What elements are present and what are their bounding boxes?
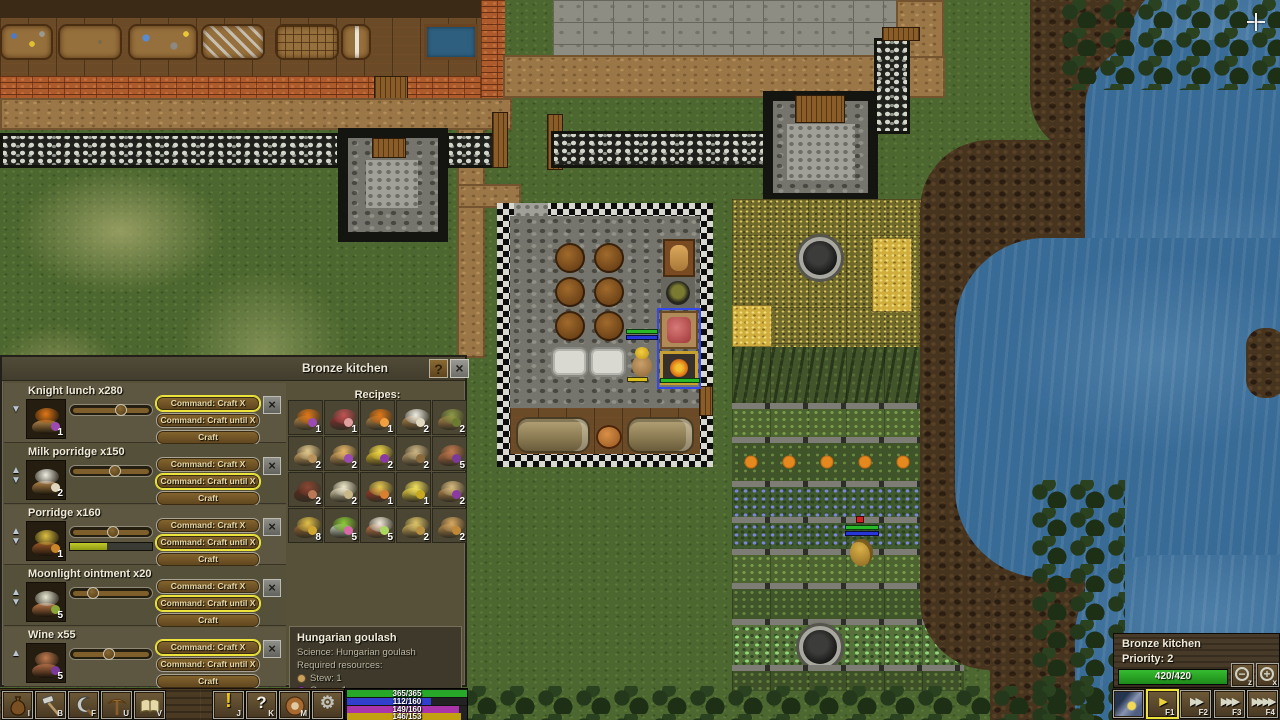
- recipe-count: 5: [459, 460, 465, 471]
- priority-increase-button[interactable]: + x: [1256, 663, 1279, 687]
- status-bar-value: 112/160: [347, 698, 467, 705]
- daynight-icon: [1115, 692, 1142, 716]
- craft-progress-bar: [69, 542, 153, 551]
- recipe-cell[interactable]: 1: [324, 400, 359, 435]
- recipe-cell[interactable]: 2: [396, 400, 431, 435]
- slider-knob[interactable]: [109, 465, 121, 477]
- recipe-cell[interactable]: 2: [288, 472, 323, 507]
- daynight-indicator[interactable]: [1113, 690, 1144, 718]
- game-speed-controls: ▶F1▶▶F2▶▶▶F3▶▶▶▶F4: [1113, 688, 1280, 720]
- recipe-count: 2: [387, 460, 393, 471]
- reorder-arrows: ▲: [7, 649, 25, 659]
- reorder-down-button[interactable]: ▼: [7, 476, 25, 486]
- storage-bin-crates[interactable]: [275, 24, 339, 60]
- remove-item-button[interactable]: ×: [263, 518, 281, 536]
- queue-row-buttons: Command: Craft XCommand: Craft until XCr…: [156, 457, 260, 508]
- kitchen-door[interactable]: [699, 386, 713, 416]
- game-viewport: Bronze kitchen ? × Knight lunch x280▼1Co…: [0, 0, 1280, 720]
- resource-text: Stew: 1: [310, 673, 342, 684]
- queue-row-buttons: Command: Craft XCommand: Craft until XCr…: [156, 518, 260, 569]
- slider-knob[interactable]: [115, 404, 127, 416]
- reorder-arrows: ▲▼: [7, 588, 25, 608]
- recipe-count: 1: [387, 496, 393, 507]
- queue-item-name: Porridge x160: [28, 507, 101, 519]
- craft-button[interactable]: Craft: [156, 430, 260, 445]
- remove-item-button[interactable]: ×: [263, 396, 281, 414]
- queue-item-name: Knight lunch x280: [28, 385, 123, 397]
- hotkey-label: K: [268, 709, 274, 718]
- recipe-cell[interactable]: 2: [324, 436, 359, 471]
- recipe-count: 5: [387, 532, 393, 543]
- keg[interactable]: [551, 347, 588, 377]
- recipe-count: 2: [459, 496, 465, 507]
- status-bar-value: 365/365: [347, 690, 467, 697]
- speed-4-icon: ▶▶▶▶: [1248, 695, 1277, 708]
- barrel[interactable]: [555, 243, 585, 273]
- command-button[interactable]: Command: Craft until X: [156, 413, 260, 428]
- workstation-butcher-table[interactable]: [660, 311, 698, 349]
- recipe-count: 1: [315, 424, 321, 435]
- recipe-cell[interactable]: 1: [360, 472, 395, 507]
- stone-wall: [0, 133, 340, 168]
- hotkey-label: M: [300, 709, 307, 718]
- recipe-cell[interactable]: 8: [288, 508, 323, 543]
- toolbar-pickaxe-button[interactable]: U: [101, 691, 132, 719]
- recipe-cell[interactable]: 1: [360, 400, 395, 435]
- gnome-worker[interactable]: [628, 345, 656, 379]
- speed-button-F2[interactable]: ▶▶F2: [1180, 690, 1211, 718]
- barrel[interactable]: [594, 277, 624, 307]
- command-button[interactable]: Command: Craft until X: [156, 596, 260, 611]
- status-bar: 112/160: [347, 698, 467, 705]
- stone-wall: [874, 38, 910, 134]
- remove-item-button[interactable]: ×: [263, 640, 281, 658]
- tooltip-title: Hungarian goulash: [297, 632, 454, 644]
- recipe-cell[interactable]: 5: [324, 508, 359, 543]
- hotkey-label: U: [123, 709, 129, 718]
- remove-item-button[interactable]: ×: [263, 579, 281, 597]
- stone-pavement: [553, 0, 903, 55]
- storage-bin-weapons[interactable]: [201, 24, 265, 60]
- craft-button[interactable]: Craft: [156, 613, 260, 628]
- queue-row: Porridge x160▲▼1Command: Craft XCommand:…: [4, 505, 286, 565]
- item-count: 5: [57, 671, 63, 682]
- recipe-cell[interactable]: 2: [432, 400, 467, 435]
- storage-building-wall-shadow: [0, 0, 505, 18]
- speed-3-icon: ▶▶▶: [1215, 695, 1244, 708]
- storage-bin[interactable]: [128, 24, 198, 60]
- item-count: 2: [57, 488, 63, 499]
- brick-wall: [481, 0, 505, 100]
- speed-button-F1[interactable]: ▶F1: [1147, 690, 1178, 718]
- reorder-arrows: ▲▼: [7, 466, 25, 486]
- queue-row: Moonlight ointment x20▲▼5Command: Craft …: [4, 566, 286, 626]
- recipe-cell[interactable]: 2: [324, 472, 359, 507]
- close-icon[interactable]: ×: [450, 359, 469, 378]
- queue-row: Knight lunch x280▼1Command: Craft XComma…: [4, 383, 286, 443]
- queue-row-buttons: Command: Craft XCommand: Craft until XCr…: [156, 579, 260, 630]
- reorder-up-button[interactable]: ▲: [7, 649, 25, 659]
- status-bar: 146/153: [347, 713, 467, 720]
- recipe-count: 8: [315, 532, 321, 543]
- queue-row-buttons: Command: Craft XCommand: Craft until XCr…: [156, 396, 260, 447]
- command-button[interactable]: Command: Craft X: [156, 396, 260, 411]
- recipe-cell[interactable]: 2: [396, 508, 431, 543]
- recipe-cell[interactable]: 2: [432, 508, 467, 543]
- window-titlebar[interactable]: Bronze kitchen ? ×: [2, 357, 465, 381]
- recipe-count: 2: [315, 496, 321, 507]
- hotkey-label: F3: [1232, 708, 1241, 717]
- recipe-cell[interactable]: 2: [288, 436, 323, 471]
- craft-amount-slider[interactable]: [69, 526, 153, 538]
- command-button[interactable]: Command: Craft X: [156, 579, 260, 594]
- hotkey-label: J: [237, 709, 241, 718]
- toolbar-gear-button[interactable]: ⚙: [312, 691, 343, 719]
- command-button[interactable]: Command: Craft X: [156, 457, 260, 472]
- copper-pot[interactable]: [596, 425, 622, 449]
- item-icon: 2: [26, 460, 66, 500]
- gear-icon: ⚙: [313, 693, 342, 713]
- ripe-wheat: [872, 238, 912, 312]
- command-button[interactable]: Command: Craft X: [156, 640, 260, 655]
- trees: [460, 686, 1120, 720]
- reorder-down-button[interactable]: ▼: [7, 598, 25, 608]
- craft-button[interactable]: Craft: [156, 674, 260, 689]
- workshop-gauge: 420/420: [1118, 669, 1228, 685]
- command-button[interactable]: Command: Craft until X: [156, 657, 260, 672]
- hotkey-label: x: [1273, 678, 1277, 687]
- hotkey-label: F1: [1165, 708, 1174, 717]
- command-button[interactable]: Command: Craft until X: [156, 535, 260, 550]
- gate-tower[interactable]: [338, 128, 448, 242]
- recipe-count: 2: [423, 460, 429, 471]
- cursor-crosshair: [1247, 13, 1265, 31]
- recipe-count: 2: [459, 532, 465, 543]
- well[interactable]: [799, 237, 841, 279]
- reorder-arrows: ▲▼: [7, 527, 25, 547]
- recipe-cell[interactable]: 1: [396, 472, 431, 507]
- progress-bar: [626, 335, 658, 340]
- dirt-path: [0, 98, 512, 130]
- recipe-count: 2: [315, 460, 321, 471]
- window-title: Bronze kitchen: [285, 361, 405, 375]
- queue-row-buttons: Command: Craft XCommand: Craft until XCr…: [156, 640, 260, 691]
- queue-row: Milk porridge x150▲▼2Command: Craft XCom…: [4, 444, 286, 504]
- gate-door[interactable]: [795, 95, 845, 123]
- kitchen-door[interactable]: [514, 203, 548, 216]
- tooltip-science: Science: Hungarian goulash: [297, 647, 454, 658]
- hotkey-label: I: [28, 709, 30, 718]
- item-icon: 5: [26, 582, 66, 622]
- recipe-count: 2: [423, 424, 429, 435]
- recipe-count: 2: [351, 496, 357, 507]
- speed-button-F4[interactable]: ▶▶▶▶F4: [1247, 690, 1278, 718]
- item-icon: 1: [26, 399, 66, 439]
- queue-item-name: Moonlight ointment x20: [28, 568, 151, 580]
- reorder-down-button[interactable]: ▼: [7, 537, 25, 547]
- mud-island: [1246, 328, 1280, 398]
- toolbar-hammer-button[interactable]: B: [35, 691, 66, 719]
- status-bars: 365/365112/160149/160146/153: [344, 688, 468, 720]
- command-button[interactable]: Command: Craft X: [156, 518, 260, 533]
- workshop-window: Bronze kitchen ? × Knight lunch x280▼1Co…: [0, 355, 467, 687]
- trees: [1030, 480, 1125, 720]
- craft-queue: Knight lunch x280▼1Command: Craft XComma…: [4, 383, 286, 687]
- hotkey-label: F4: [1266, 708, 1275, 717]
- help-button[interactable]: ?: [429, 359, 448, 378]
- progress-bar: [627, 377, 648, 382]
- hotkey-label: F2: [1199, 708, 1208, 717]
- craft-amount-slider[interactable]: [69, 465, 153, 477]
- resource-icon: [297, 674, 306, 683]
- wooden-gate[interactable]: [492, 112, 508, 168]
- barrel[interactable]: [555, 311, 585, 341]
- recipe-cell[interactable]: 5: [360, 508, 395, 543]
- toolbar-exclamation-button[interactable]: !J: [213, 691, 244, 719]
- kitchen-building[interactable]: [497, 203, 713, 467]
- barrel[interactable]: [594, 243, 624, 273]
- status-bar-value: 146/153: [347, 713, 467, 720]
- workshop-info-panel: Bronze kitchen Priority: 2 420/420 − z +…: [1113, 633, 1280, 688]
- progress-bar: [626, 329, 658, 334]
- hotkey-label: B: [57, 709, 63, 718]
- cauldron[interactable]: [661, 277, 695, 309]
- building-door[interactable]: [374, 76, 408, 100]
- item-icon: 1: [26, 521, 66, 561]
- toolbar-book-button[interactable]: V: [134, 691, 165, 719]
- item-count: 1: [57, 427, 63, 438]
- speed-button-F3[interactable]: ▶▶▶F3: [1214, 690, 1245, 718]
- storage-bin[interactable]: [58, 24, 122, 60]
- recipe-cell[interactable]: 1: [288, 400, 323, 435]
- slider-knob[interactable]: [103, 648, 115, 660]
- toolbar-sack-button[interactable]: I: [2, 691, 33, 719]
- craft-button[interactable]: Craft: [156, 491, 260, 506]
- selection-highlight: [657, 308, 701, 389]
- water-trough[interactable]: [424, 24, 478, 60]
- item-count: 5: [57, 610, 63, 621]
- recipe-cell[interactable]: 2: [432, 472, 467, 507]
- barrel[interactable]: [555, 277, 585, 307]
- recipe-cell[interactable]: 2: [396, 436, 431, 471]
- speed-2-icon: ▶▶: [1181, 695, 1210, 708]
- wooden-gate[interactable]: [882, 27, 920, 41]
- recipe-count: 1: [423, 496, 429, 507]
- keg[interactable]: [589, 347, 626, 377]
- craft-button[interactable]: Craft: [156, 552, 260, 567]
- recipe-count: 1: [351, 424, 357, 435]
- well[interactable]: [799, 626, 841, 668]
- progress-bar: [660, 378, 700, 383]
- workshop-priority: Priority: 2: [1122, 653, 1173, 665]
- recipe-count: 2: [423, 532, 429, 543]
- gnome-farmer[interactable]: [845, 516, 881, 572]
- recipes-panel: Recipes: 11122222252211285522 Hungarian …: [288, 383, 467, 687]
- toolbar-sickle-button[interactable]: F: [68, 691, 99, 719]
- large-barrel[interactable]: [516, 417, 590, 453]
- workshop-gauge-value: 420/420: [1119, 671, 1227, 682]
- hotkey-label: F: [91, 709, 96, 718]
- sack-icon: [6, 694, 30, 718]
- reorder-down-button[interactable]: ▼: [7, 405, 25, 415]
- toolbar-meal-button[interactable]: M: [279, 691, 310, 719]
- gate-tower[interactable]: [763, 91, 878, 203]
- craft-amount-slider[interactable]: [69, 587, 153, 599]
- recipe-cell[interactable]: 2: [360, 436, 395, 471]
- item-icon: 5: [26, 643, 66, 683]
- tooltip-required: Required resources:: [297, 660, 454, 671]
- recipe-count: 5: [351, 532, 357, 543]
- storage-bin[interactable]: [0, 24, 53, 60]
- recipe-count: 2: [351, 460, 357, 471]
- queue-row: Wine x55▲5Command: Craft XCommand: Craft…: [4, 627, 286, 687]
- bread-table[interactable]: [663, 239, 695, 277]
- item-count: 1: [57, 549, 63, 560]
- remove-item-button[interactable]: ×: [263, 457, 281, 475]
- craft-amount-slider[interactable]: [69, 404, 153, 416]
- recipe-count: 2: [459, 424, 465, 435]
- gate-door[interactable]: [372, 138, 406, 158]
- barrel[interactable]: [594, 311, 624, 341]
- ripe-wheat: [732, 305, 772, 347]
- storage-bin[interactable]: [341, 24, 371, 60]
- slider-knob[interactable]: [107, 526, 119, 538]
- recipe-cell[interactable]: 5: [432, 436, 467, 471]
- slider-knob[interactable]: [87, 587, 99, 599]
- craft-amount-slider[interactable]: [69, 648, 153, 660]
- toolbar-question-button[interactable]: ?K: [246, 691, 277, 719]
- command-button[interactable]: Command: Craft until X: [156, 474, 260, 489]
- queue-item-name: Wine x55: [28, 629, 76, 641]
- reorder-arrows: ▼: [7, 405, 25, 415]
- priority-decrease-button[interactable]: − z: [1231, 663, 1254, 687]
- queue-item-name: Milk porridge x150: [28, 446, 125, 458]
- brick-wall: [0, 76, 505, 100]
- hotkey-label: z: [1248, 678, 1252, 687]
- workshop-title: Bronze kitchen: [1122, 638, 1201, 650]
- recipe-count: 1: [387, 424, 393, 435]
- large-barrel[interactable]: [627, 417, 694, 453]
- stone-wall: [551, 131, 767, 168]
- tooltip-resource: Stew: 1: [297, 673, 454, 684]
- speed-1-icon: ▶: [1148, 695, 1177, 708]
- status-bar: 365/365: [347, 690, 467, 697]
- hotkey-label: V: [157, 709, 162, 718]
